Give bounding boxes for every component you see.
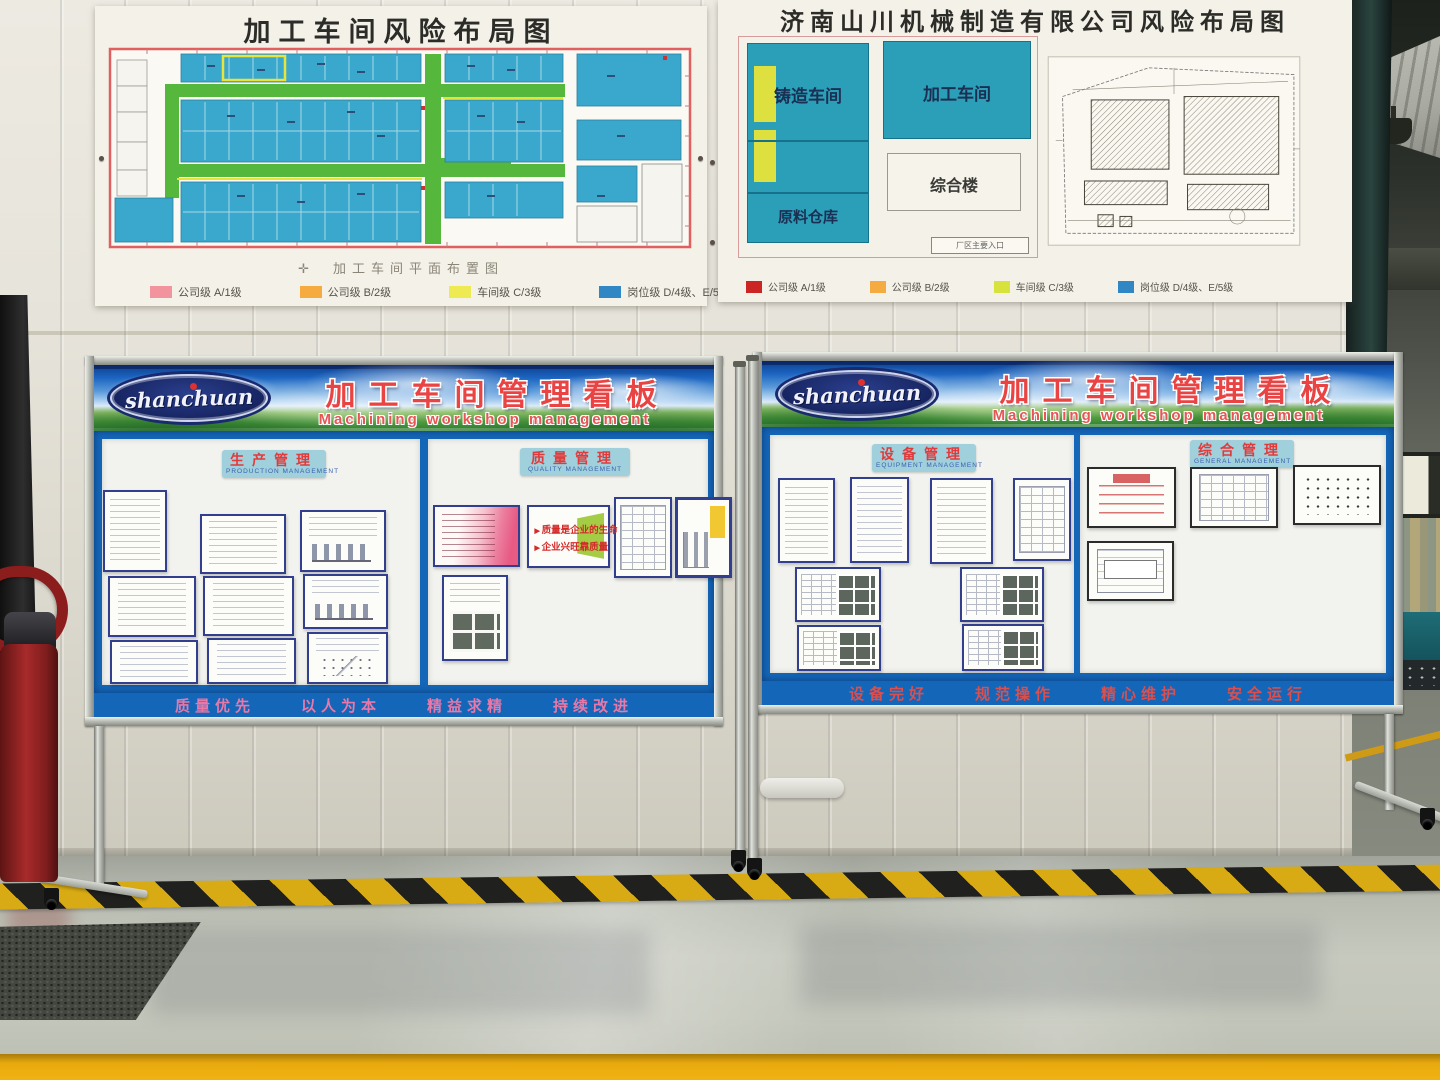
zone-label-foundry: 铸造车间 [748, 82, 868, 107]
board-title: 加工车间管理看板 [289, 370, 706, 414]
document-card-chart [307, 632, 388, 684]
legend-swatch [870, 281, 886, 293]
zone-yellow-strip [754, 130, 776, 182]
logo-text: shanchuan [125, 383, 254, 412]
legend-swatch [449, 286, 471, 298]
factory-wall-scene: 加工车间风险布局图 [0, 0, 1440, 1080]
document-card-quotes: 质量是企业的生命 企业兴旺靠质量 [527, 505, 610, 568]
section-label-equipment: 设备管理 EQUIPMENT MANAGEMENT [872, 444, 976, 472]
zone-label-machining: 加工车间 [884, 80, 1030, 105]
legend-item: 公司级 A/1级 [746, 279, 826, 294]
document-card-photos [795, 567, 881, 622]
stand-post [748, 360, 758, 862]
shanchuan-logo: shanchuan [778, 370, 936, 418]
document-card-table [1190, 467, 1278, 528]
fire-extinguisher [0, 644, 58, 882]
zone-diagram: 铸造车间 原料仓库 加工车间 综合楼 厂区主要入口 [738, 36, 1038, 258]
document-card-photos [797, 625, 881, 671]
zone-machining: 加工车间 [883, 41, 1031, 139]
board-subtitle: Machining workshop management [264, 411, 706, 428]
frame-rail-top [753, 352, 1403, 361]
board-title: 加工车间管理看板 [957, 366, 1386, 410]
frame-rail-left [85, 356, 94, 726]
shanchuan-logo: shanchuan [110, 374, 268, 422]
board-banner: shanchuan 加工车间管理看板 Machining workshop ma… [94, 365, 714, 431]
board-slogan: 质量优先以人为本 精益求精持续改进 [94, 693, 714, 717]
post-cap [746, 355, 759, 361]
zone-divider [748, 192, 868, 194]
risk-layout-poster-right: 济南山川机械制造有限公司风险布局图 铸造车间 原料仓库 加工车间 综合楼 厂区主… [718, 0, 1352, 302]
document-card [207, 638, 296, 684]
poster-title: 加工车间风险布局图 [95, 10, 707, 49]
document-card-photos [962, 624, 1044, 671]
document-card [103, 490, 167, 572]
document-card-chart [303, 574, 388, 629]
risk-layout-poster-left: 加工车间风险布局图 [95, 6, 707, 306]
board-slogan: 设备完好规范操作 精心维护安全运行 [762, 681, 1394, 705]
quality-quote: 企业兴旺靠质量 [535, 539, 609, 553]
caster-wheel [747, 858, 762, 878]
legend-swatch [1118, 281, 1134, 293]
board-reflection [150, 930, 650, 1015]
document-card-chart [675, 497, 732, 578]
document-card [110, 640, 198, 684]
poster-pin [99, 156, 104, 161]
zone-label-entrance: 厂区主要入口 [931, 237, 1029, 254]
legend-item: 岗位级 D/4级、E/5级 [1118, 279, 1233, 294]
poster-pin [698, 156, 703, 161]
legend-swatch [746, 281, 762, 293]
legend-swatch [599, 286, 621, 298]
document-card-diagram [1087, 541, 1174, 601]
stand-post [94, 726, 104, 884]
caster-wheel [44, 888, 59, 908]
section-label-quality: 质量管理 QUALITY MANAGEMENT [520, 448, 630, 476]
legend-swatch [994, 281, 1010, 293]
board-subtitle: Machining workshop management [932, 407, 1386, 424]
legend-item: 车间级 C/3级 [994, 279, 1074, 294]
legend-item: 车间级 C/3级 [449, 284, 541, 300]
caster-wheel [731, 850, 746, 870]
document-card [850, 477, 909, 563]
quality-quote: 质量是企业的生命 [535, 522, 618, 536]
document-card [203, 576, 294, 636]
plan-legend: 公司级 A/1级 公司级 B/2级 车间级 C/3级 岗位级 D/4级、E/5级 [150, 284, 687, 300]
board-reflection [800, 925, 1320, 1005]
zone-divider [748, 140, 868, 142]
document-card-certificate [1087, 467, 1176, 528]
document-card [200, 514, 286, 574]
section-label-general: 综合管理 GENERAL MANAGEMENT [1190, 440, 1294, 468]
frame-rail-bottom [753, 705, 1403, 714]
document-card [778, 478, 835, 563]
zone-label-office: 综合楼 [888, 172, 1020, 196]
site-plan-drawing [1044, 56, 1304, 246]
zone-office: 综合楼 [887, 153, 1021, 211]
pipe-on-floor [760, 778, 844, 798]
legend-item: 公司级 B/2级 [870, 279, 950, 294]
frame-rail-right [1394, 352, 1403, 714]
poster-pin [710, 240, 715, 245]
document-card-matrix [1293, 465, 1381, 525]
yellow-floor-band [0, 1054, 1440, 1080]
frame-rail-bottom [85, 717, 723, 726]
plan-caption: ✛加工车间平面布置图 [95, 258, 707, 277]
document-card [930, 478, 993, 564]
document-card-pink [433, 505, 520, 567]
compass-icon: ✛ [298, 261, 309, 277]
document-card-table [614, 497, 672, 578]
poster-title: 济南山川机械制造有限公司风险布局图 [718, 2, 1352, 37]
caster-wheel [1420, 808, 1435, 828]
zone-label-warehouse: 原料仓库 [748, 206, 868, 227]
document-card-table [1013, 478, 1071, 561]
document-card-photos [960, 567, 1044, 622]
legend-item: 公司级 A/1级 [150, 284, 242, 300]
legend-swatch [300, 286, 322, 298]
logo-text: shanchuan [793, 379, 922, 408]
document-card-chart [300, 510, 386, 572]
document-card-photos [442, 575, 508, 661]
zone-foundry-warehouse: 铸造车间 原料仓库 [747, 43, 869, 243]
legend-swatch [150, 286, 172, 298]
frame-rail-top [85, 356, 723, 365]
plan-legend: 公司级 A/1级 公司级 B/2级 车间级 C/3级 岗位级 D/4级、E/5级 [746, 279, 1322, 294]
poster-pin [710, 160, 715, 165]
post-cap [733, 361, 746, 367]
workshop-floor-plan [107, 46, 693, 256]
legend-item: 公司级 B/2级 [300, 284, 392, 300]
section-label-production: 生产管理 PRODUCTION MANAGEMENT [222, 450, 326, 478]
board-banner: shanchuan 加工车间管理看板 Machining workshop ma… [762, 361, 1394, 427]
stand-post [735, 366, 745, 854]
wall-girt-line [0, 331, 1360, 335]
legend-item: 岗位级 D/4级、E/5级 [599, 284, 730, 300]
document-card [108, 576, 196, 637]
